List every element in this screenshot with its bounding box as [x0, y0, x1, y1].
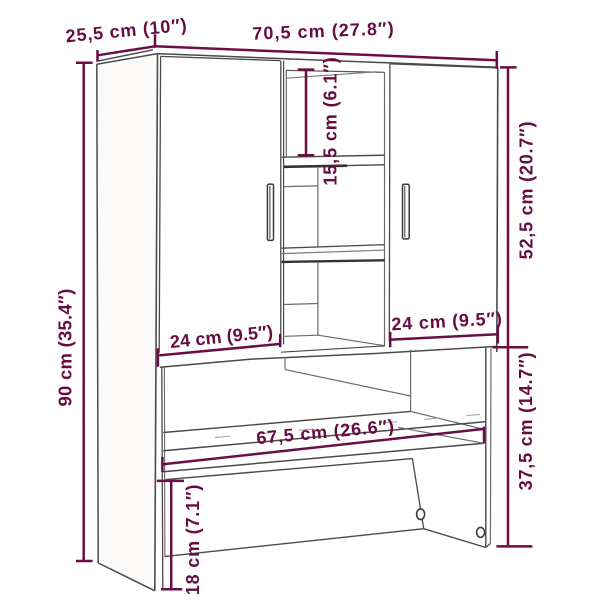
svg-text:37,5 cm (14.7″): 37,5 cm (14.7″)	[516, 352, 536, 491]
svg-text:15,5 cm (6.1″): 15,5 cm (6.1″)	[321, 56, 341, 185]
svg-text:18 cm (7.1″): 18 cm (7.1″)	[183, 484, 203, 595]
svg-text:90 cm (35.4″): 90 cm (35.4″)	[55, 288, 76, 406]
svg-text:52,5 cm (20.7″): 52,5 cm (20.7″)	[517, 121, 537, 260]
